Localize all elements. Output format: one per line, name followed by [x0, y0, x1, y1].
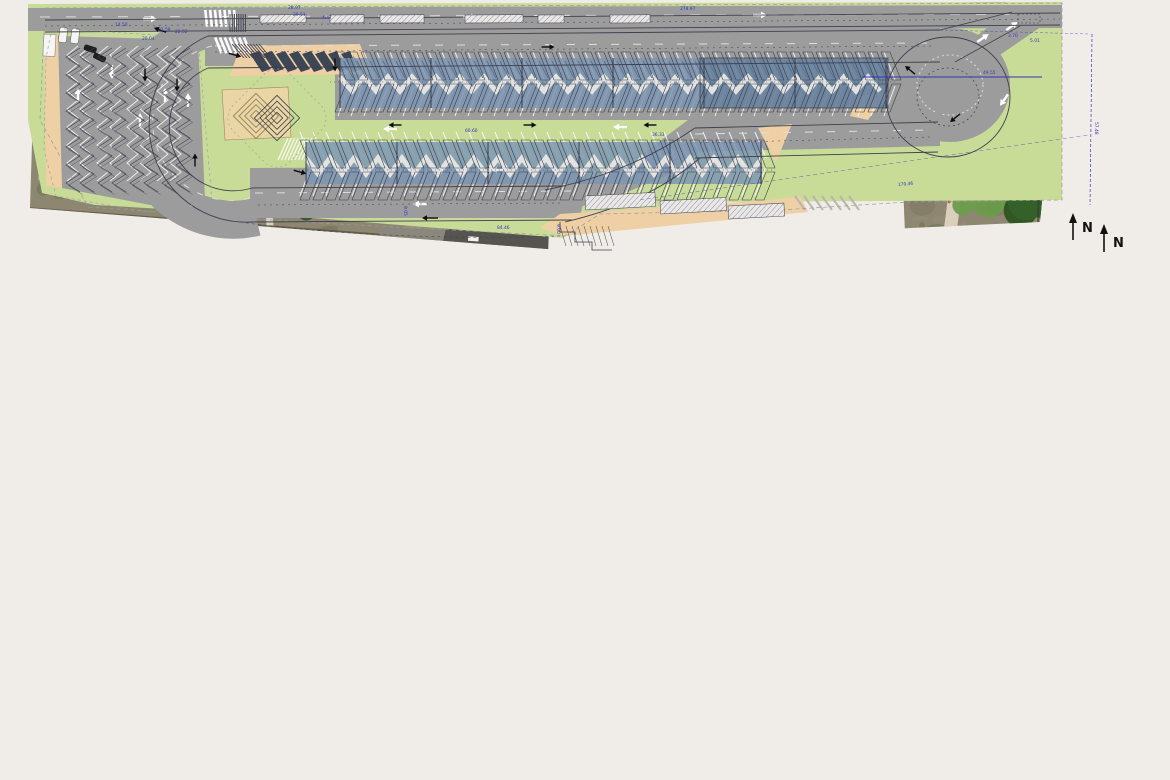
svg-text:5.01: 5.01	[1030, 38, 1040, 44]
cad-plan-panel: 28.9729.514.47278.9714.5020.0432.5822.52…	[0, 0, 1170, 265]
north-label: N	[1113, 236, 1124, 251]
svg-text:3.70: 3.70	[1008, 33, 1018, 39]
svg-text:84.46: 84.46	[497, 225, 510, 231]
cad-dimension-plan: 28.9729.514.47278.9714.5020.0432.5822.52…	[40, 3, 1099, 250]
svg-text:20.04: 20.04	[142, 36, 155, 42]
svg-text:9.00: 9.00	[555, 224, 561, 234]
north-arrow-head	[1100, 224, 1108, 234]
north-arrow: N	[1100, 224, 1124, 252]
svg-text:28.97: 28.97	[288, 5, 301, 11]
svg-text:49.55: 49.55	[983, 70, 996, 76]
svg-text:22.52: 22.52	[175, 29, 188, 35]
svg-text:36.33: 36.33	[652, 132, 665, 138]
svg-text:60.60: 60.60	[465, 128, 478, 134]
svg-text:170.46: 170.46	[898, 181, 914, 188]
svg-text:278.97: 278.97	[680, 6, 696, 12]
svg-text:57.48: 57.48	[1093, 122, 1099, 135]
svg-text:4.47: 4.47	[322, 15, 332, 21]
svg-text:9.05: 9.05	[402, 206, 408, 216]
svg-text:32.58: 32.58	[158, 27, 171, 33]
svg-text:14.50: 14.50	[115, 22, 128, 28]
svg-text:29.51: 29.51	[293, 12, 306, 18]
